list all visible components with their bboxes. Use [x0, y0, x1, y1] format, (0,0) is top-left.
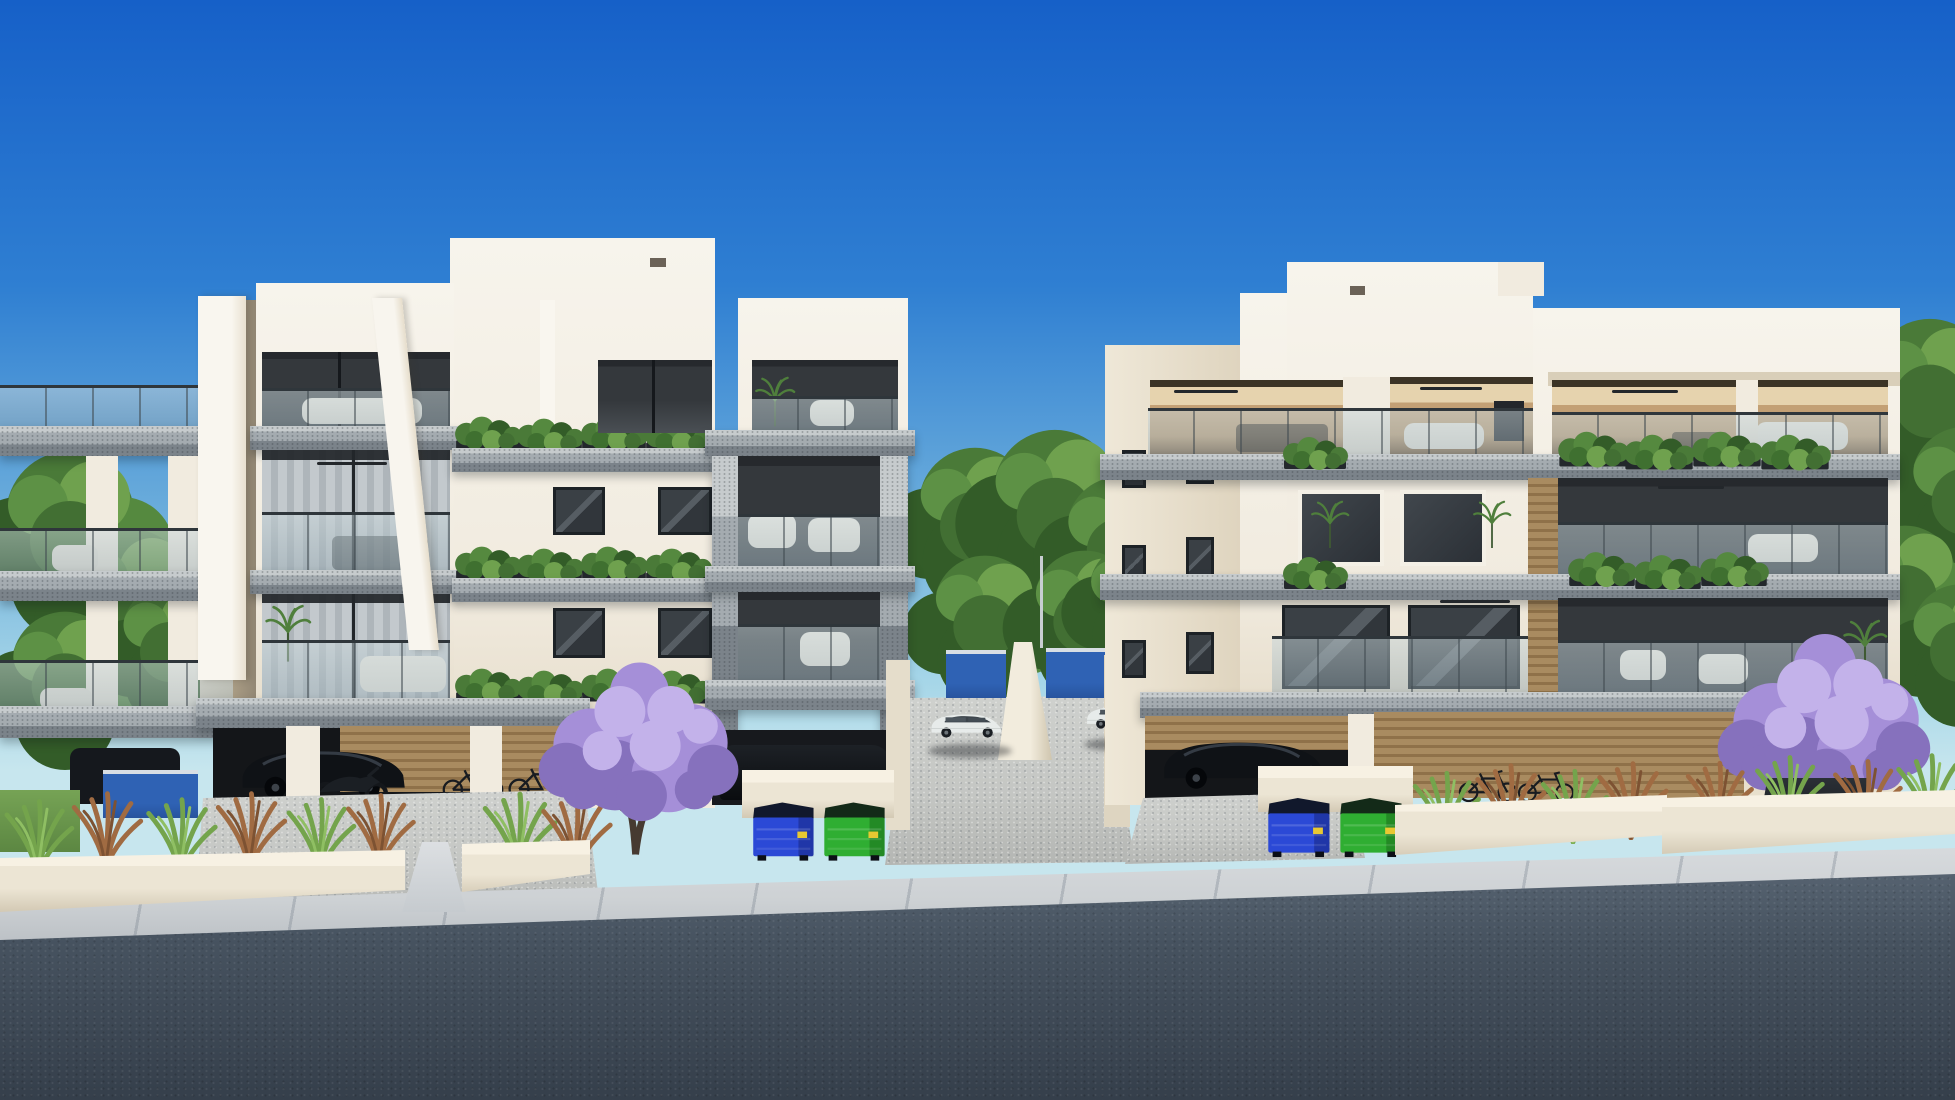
window-mullion — [652, 360, 655, 433]
balcony-palm — [1310, 488, 1350, 552]
left-building — [0, 200, 960, 820]
block-railing-lower — [738, 624, 880, 683]
side-window — [1186, 537, 1214, 579]
blue-ramp-wall — [946, 650, 1006, 698]
top-terrace-recess — [598, 360, 712, 433]
slab-1 — [250, 426, 460, 450]
block-railing-upper — [738, 514, 880, 569]
lower-floor-railing — [1272, 636, 1528, 695]
ceiling-fan — [1440, 600, 1510, 603]
slab-planter-greenery — [1280, 428, 1350, 476]
block-slab-mid — [705, 566, 915, 592]
recycling-bins-left-pair — [750, 795, 890, 867]
back-volume-slab-2 — [452, 578, 715, 602]
back-volume-vent — [650, 258, 666, 267]
ceiling-fan — [317, 462, 387, 465]
white-suv — [926, 692, 1008, 754]
slab-planter-greenery — [1555, 422, 1835, 476]
side-window — [1122, 640, 1146, 678]
ceiling-fan — [1420, 387, 1482, 390]
recycling-bins-right-pair — [1265, 790, 1407, 864]
ceiling-fan — [1174, 390, 1238, 393]
parapet-cap — [1498, 262, 1544, 296]
ceiling-fan — [1612, 390, 1678, 393]
back-volume-slab-1 — [452, 448, 715, 472]
ceiling-fan — [1658, 486, 1724, 489]
window — [658, 487, 712, 535]
top-floor-railing — [262, 388, 450, 431]
white-fin — [198, 296, 246, 680]
left-jacaranda-tree — [522, 648, 757, 863]
slab-planter-greenery — [1280, 548, 1350, 596]
window — [553, 487, 605, 535]
balcony-palm — [1472, 488, 1512, 552]
parapet-vent — [1350, 286, 1365, 295]
side-window — [1186, 632, 1214, 674]
architectural-render-scene — [0, 0, 1955, 1100]
block-slab-top — [705, 430, 915, 456]
light-pole — [1040, 556, 1043, 648]
slab-planter-greenery — [1565, 542, 1805, 596]
